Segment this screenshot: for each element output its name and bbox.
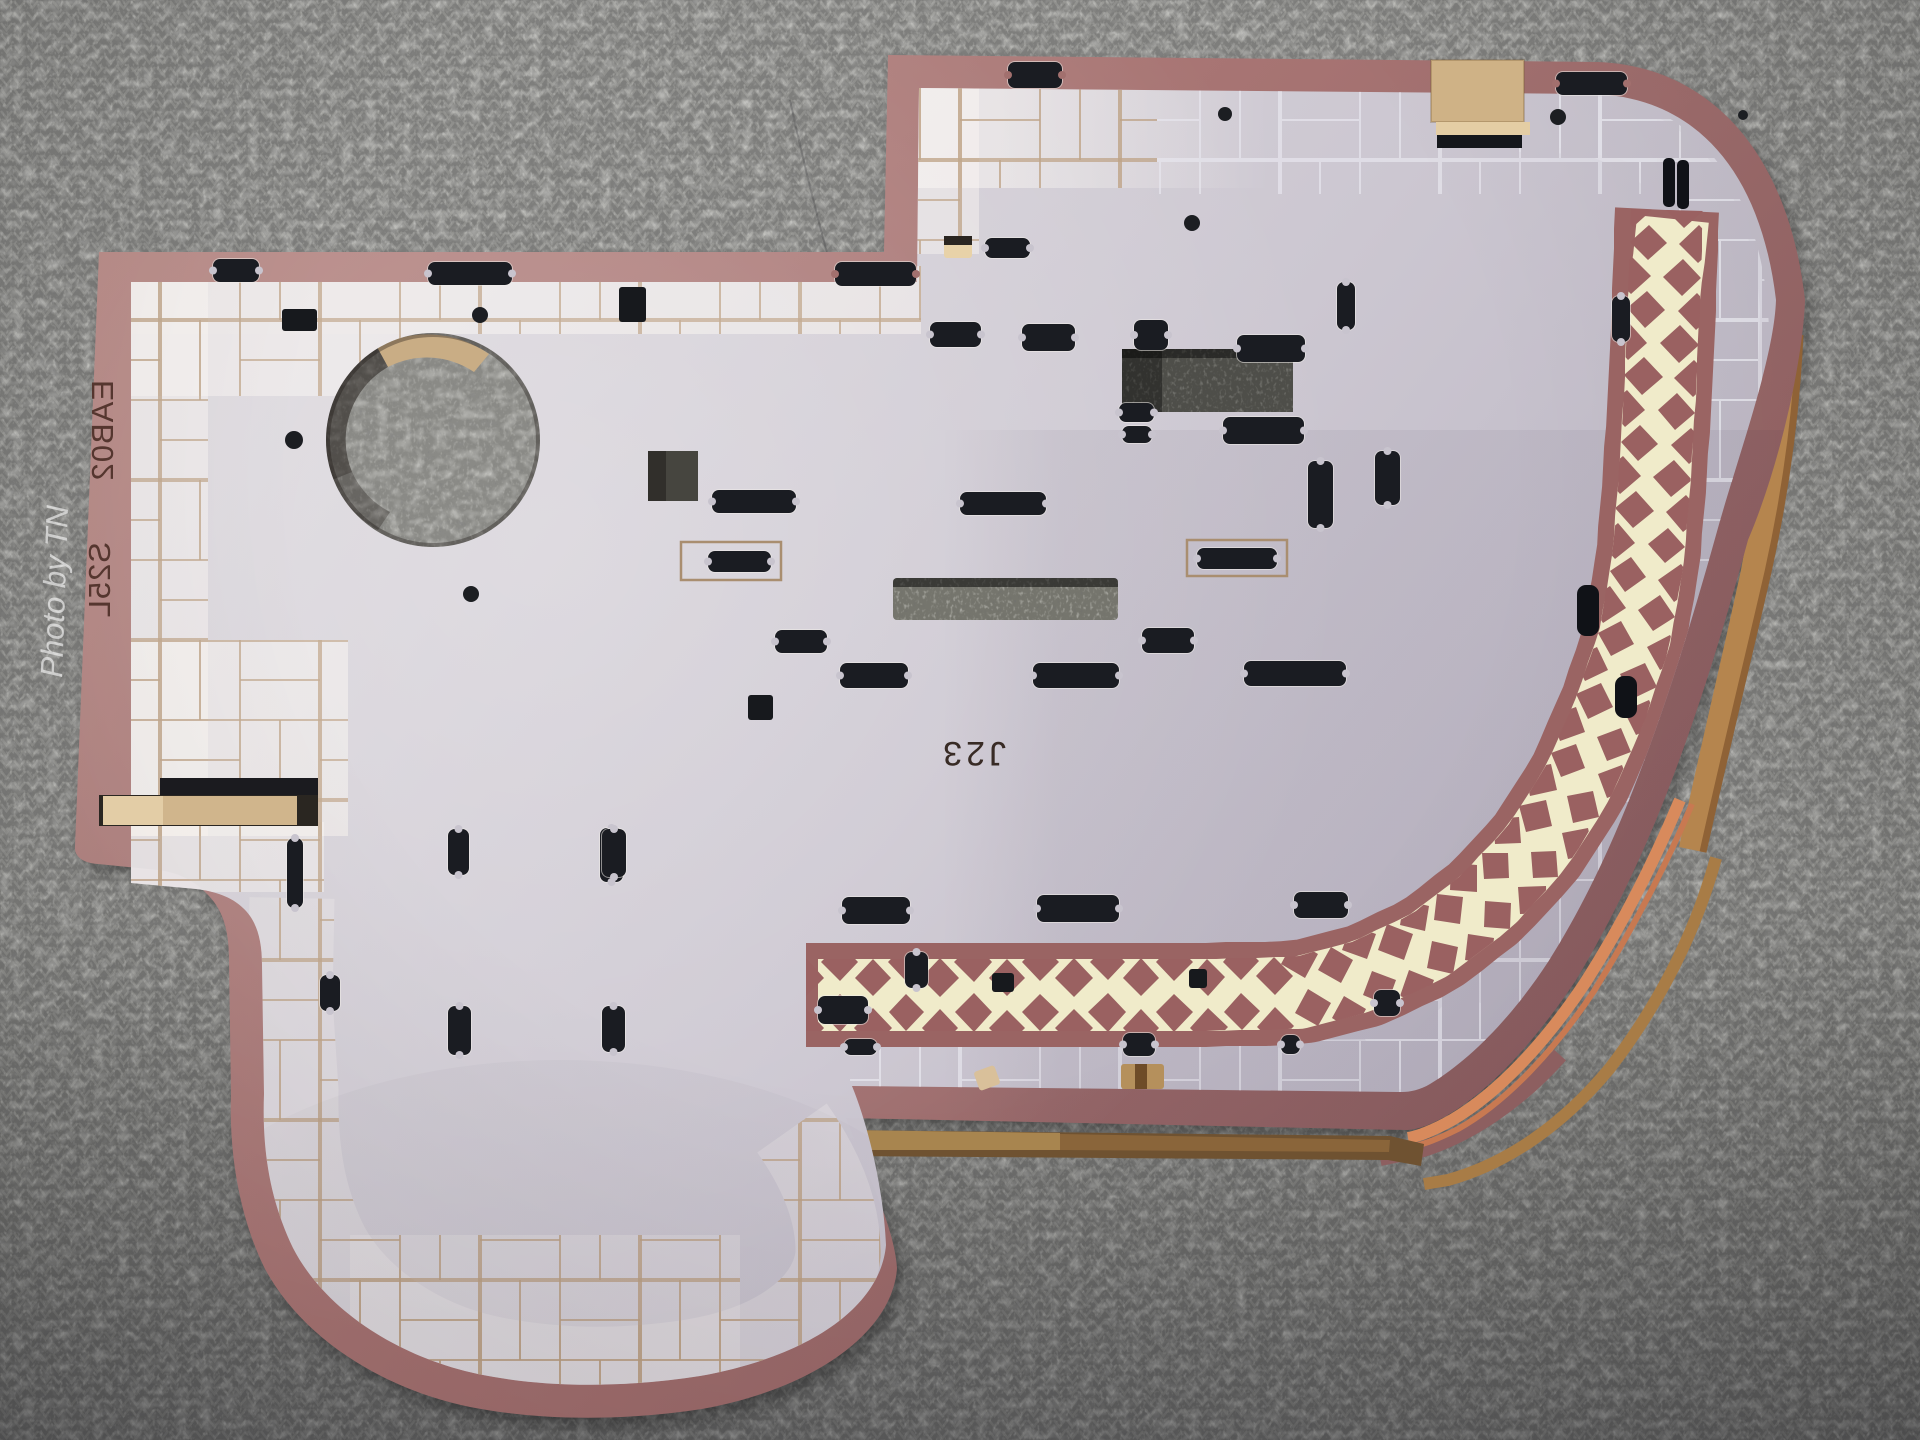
svg-text:J23: J23 xyxy=(939,734,1006,772)
svg-text:S25L: S25L xyxy=(82,542,117,618)
svg-text:Photo by TN: Photo by TN xyxy=(34,504,75,678)
svg-text:EAB02: EAB02 xyxy=(85,380,120,482)
